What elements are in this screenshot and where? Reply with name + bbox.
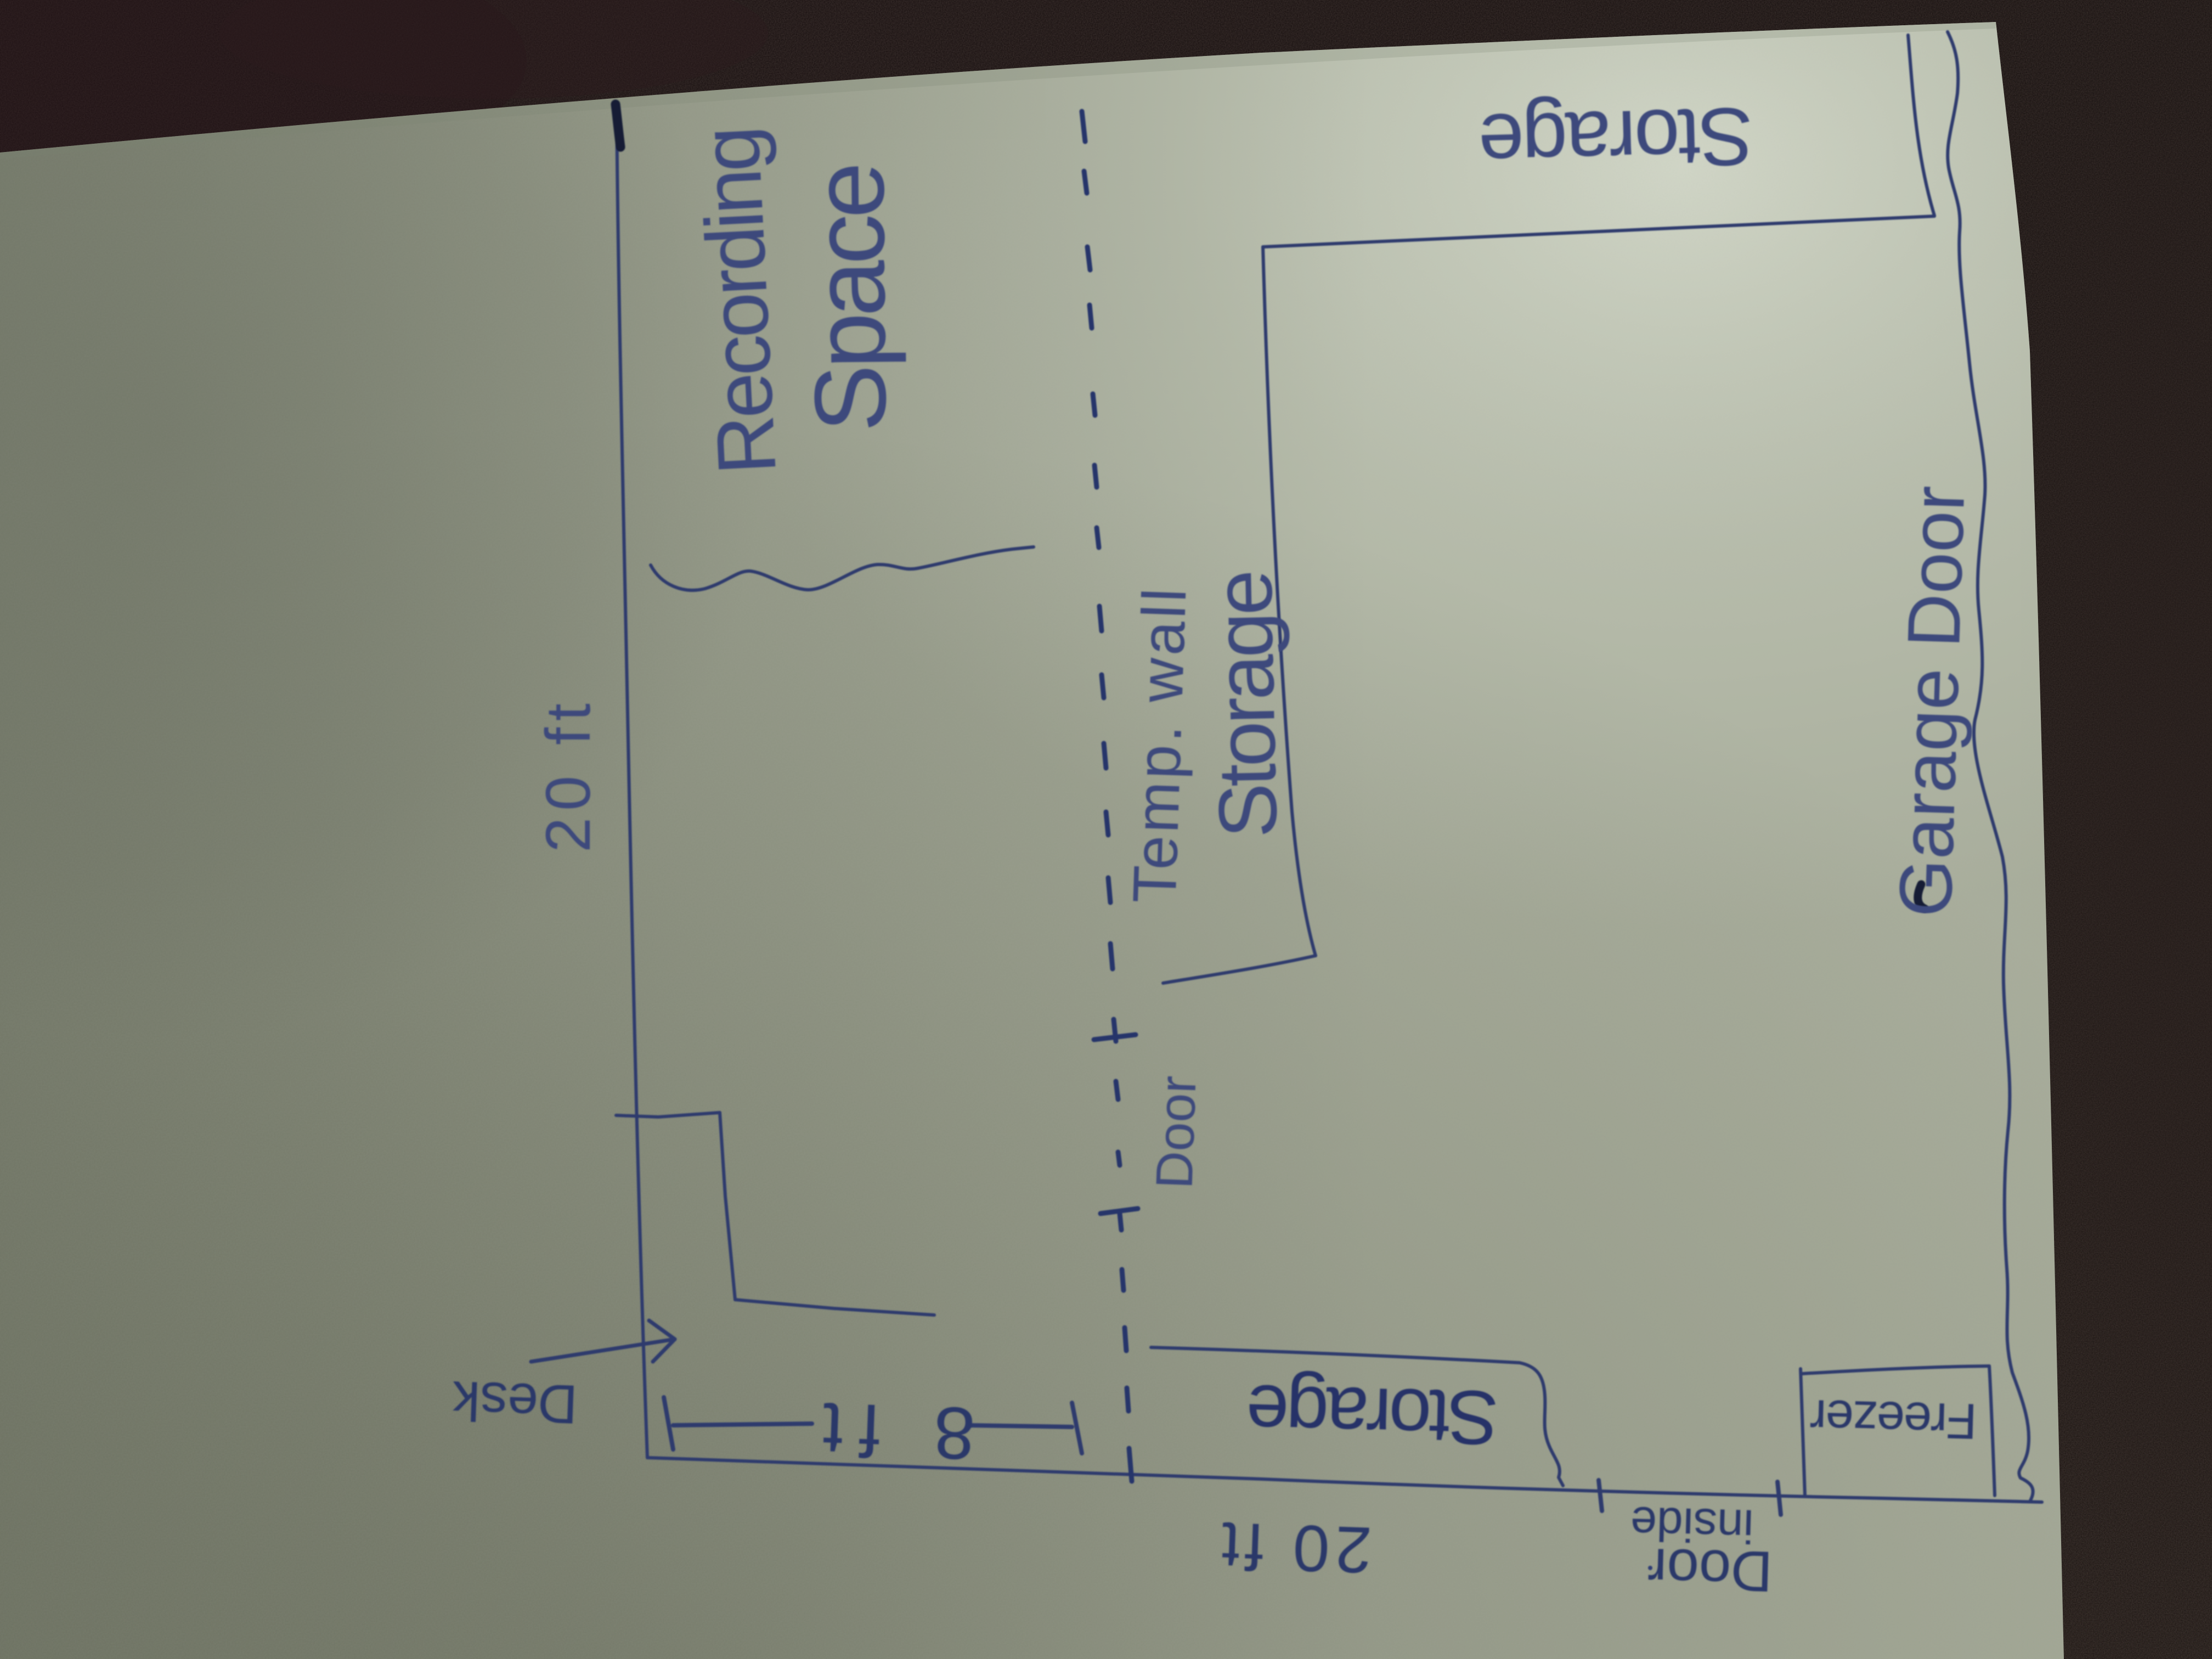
- svg-text:Door: Door: [1145, 1075, 1207, 1189]
- svg-text:Space: Space: [792, 166, 907, 432]
- svg-text:Temp. wall: Temp. wall: [1120, 584, 1199, 904]
- svg-text:Storage: Storage: [1480, 91, 1755, 190]
- svg-text:Freezer: Freezer: [1809, 1389, 1978, 1449]
- svg-text:Recording: Recording: [684, 127, 793, 477]
- svg-text:8 ft: 8 ft: [805, 1387, 977, 1476]
- svg-text:Desk: Desk: [451, 1369, 579, 1435]
- svg-text:Storage: Storage: [1197, 572, 1294, 839]
- svg-text:Storage: Storage: [1248, 1369, 1499, 1462]
- svg-text:20 ft: 20 ft: [1215, 1508, 1373, 1587]
- svg-text:Garage Door: Garage Door: [1883, 484, 1980, 918]
- svg-text:inside: inside: [1630, 1497, 1754, 1553]
- svg-text:20 ft: 20 ft: [533, 697, 603, 853]
